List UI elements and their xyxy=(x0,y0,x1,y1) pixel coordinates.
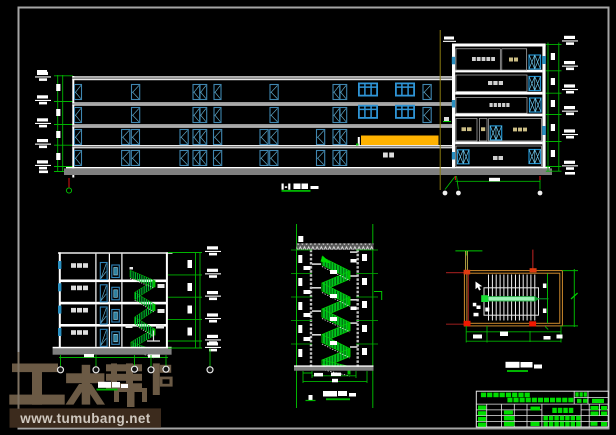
svg-text:www.tumubang.net: www.tumubang.net xyxy=(19,411,150,426)
